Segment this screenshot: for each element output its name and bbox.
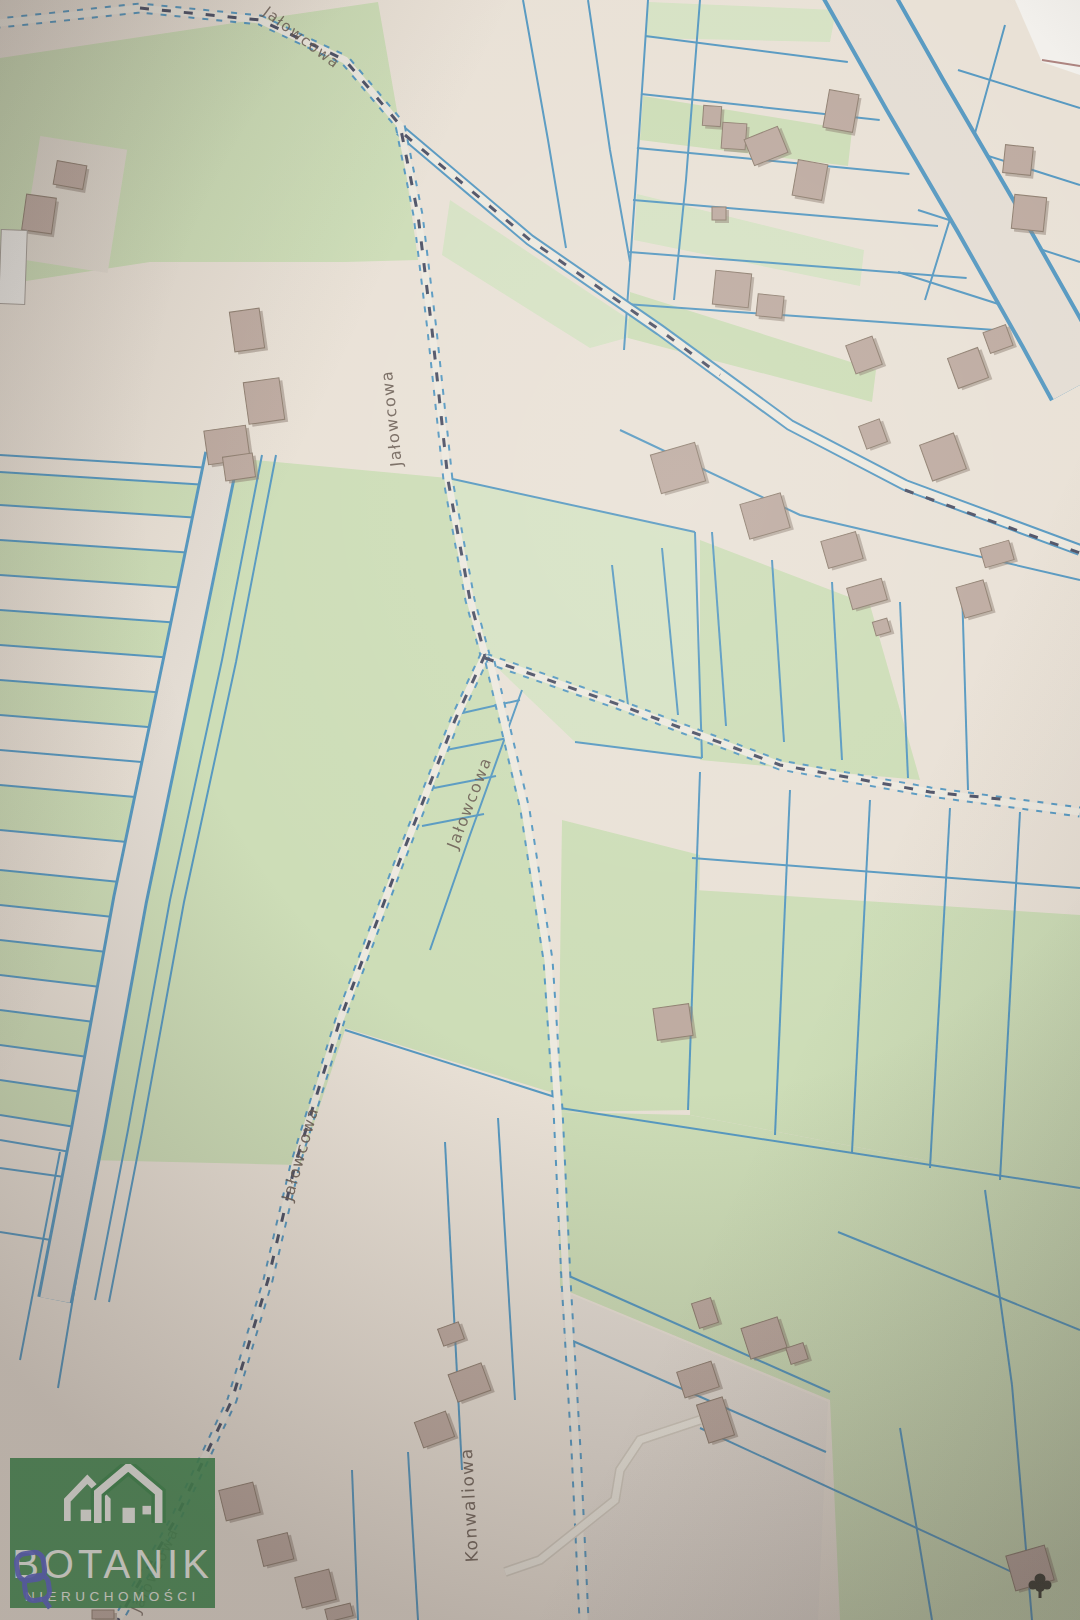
parcel-boundary: [0, 455, 211, 468]
parcel-green: [645, 2, 836, 42]
building: [847, 578, 888, 609]
house-icon: [55, 1464, 171, 1542]
parcel-green: [634, 194, 864, 286]
parcel-green: [442, 200, 648, 348]
parcel-boundary: [352, 1470, 358, 1620]
link-icon: [12, 1548, 56, 1614]
parcel-boundary: [0, 1140, 76, 1153]
building: [1003, 145, 1034, 176]
building: [229, 308, 264, 352]
parcel-green: [558, 820, 700, 1112]
building: [712, 207, 726, 220]
building: [712, 270, 751, 308]
parcel-strip-green: [0, 785, 145, 843]
parcel-boundary: [958, 70, 1080, 108]
building: [756, 294, 784, 319]
building: [1011, 194, 1046, 231]
building: [92, 1610, 114, 1619]
survey-dash-line: [905, 490, 1080, 553]
parcel-boundary: [692, 858, 1080, 888]
parcel-green: [628, 292, 876, 402]
tree-trunk: [1039, 1588, 1042, 1598]
building: [22, 194, 57, 234]
parcel-boundary: [0, 750, 153, 763]
white-building: [0, 230, 27, 305]
parcel-boundary: [588, 0, 630, 262]
street-label-jalowcowa-upper: Jałowcowa: [377, 369, 406, 468]
building: [823, 90, 859, 133]
building: [702, 105, 721, 126]
street-label-konwaliowa: Konwaliowa: [456, 1447, 482, 1563]
map-canvas: Jałowcowa Jałowcowa Jałowcowa Jałowcowa …: [0, 0, 1080, 1620]
parcel-boundary: [523, 0, 566, 248]
parcel-boundary: [498, 1118, 515, 1400]
building: [792, 160, 828, 201]
building: [53, 161, 87, 190]
map-photo: Jałowcowa Jałowcowa Jałowcowa Jałowcowa …: [0, 0, 1080, 1620]
building: [721, 122, 747, 150]
parcel-boundary: [408, 1452, 418, 1620]
building: [222, 453, 255, 481]
building: [653, 1004, 693, 1041]
building: [243, 378, 284, 425]
